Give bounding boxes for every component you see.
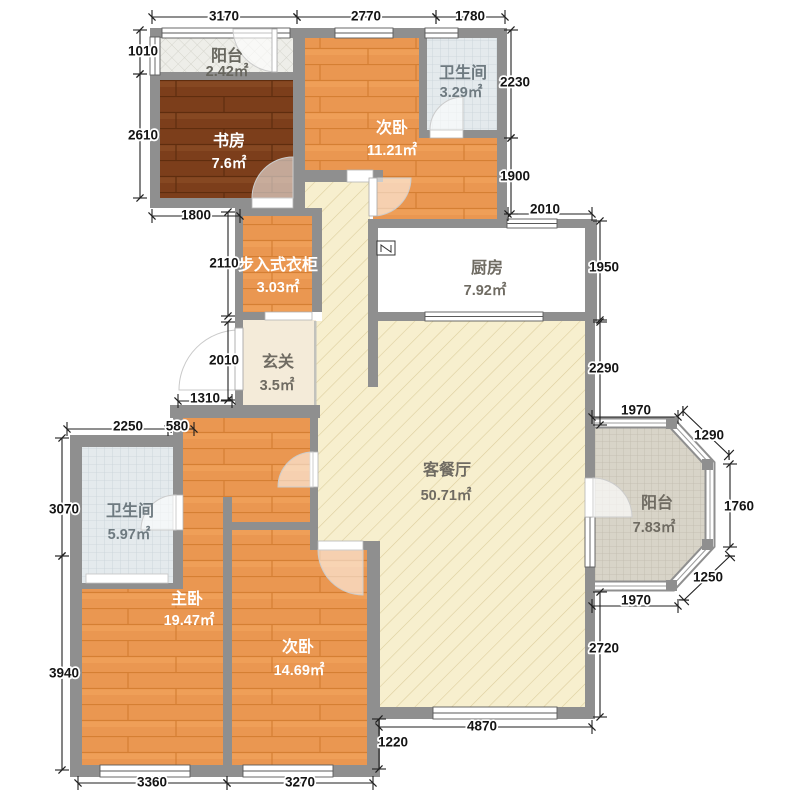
room-area-bathroom-bottom: 5.97㎡: [108, 525, 151, 543]
room-area-bathroom-top: 3.29㎡: [440, 83, 483, 101]
dimension-label: 3360: [137, 775, 167, 790]
window: [335, 28, 393, 38]
wall: [70, 435, 82, 777]
dimension: 1970: [588, 593, 681, 613]
room-label-master-bedroom: 主卧: [171, 589, 203, 608]
room-area-living-dining: 50.71㎡: [421, 486, 472, 504]
dimension-label: 4870: [467, 719, 497, 734]
dimension-label: 1310: [190, 391, 220, 406]
dimension: 2770: [293, 9, 439, 24]
room-label-kitchen: 厨房: [471, 258, 503, 277]
dimension-label: 1950: [589, 260, 619, 275]
dimension-label: 580: [166, 419, 189, 434]
foyer-hall-divider: [314, 321, 317, 405]
dimension-label: 2010: [530, 202, 560, 217]
dimension-label: 1760: [724, 499, 754, 514]
room-label-balcony-top: 阳台: [211, 46, 243, 65]
window: [433, 707, 557, 719]
dimension: 2110: [209, 208, 238, 319]
dimension-label: 1250: [693, 570, 723, 585]
hallway-floor-b: [322, 208, 370, 321]
window: [425, 312, 543, 321]
wall: [70, 435, 183, 447]
dimension: 2010: [504, 202, 595, 221]
window: [507, 219, 557, 228]
hallway-floor-a: [303, 182, 373, 208]
wall: [235, 312, 265, 320]
room-label-bathroom-top: 卫生间: [439, 63, 487, 82]
room-label-bedroom-top: 次卧: [376, 118, 408, 137]
passage-closet-foyer: [265, 312, 312, 320]
room-label-closet: 步入式衣柜: [238, 255, 318, 274]
room-area-master-bedroom: 19.47㎡: [164, 611, 215, 629]
dimension-label: 3070: [49, 502, 79, 517]
wall: [223, 497, 232, 765]
room-label-foyer: 玄关: [262, 352, 294, 371]
dimension-label: 1780: [455, 9, 485, 24]
room-area-closet: 3.03㎡: [257, 278, 300, 296]
wall: [235, 208, 322, 216]
dimension-label: 2250: [113, 419, 143, 434]
wall: [150, 198, 253, 208]
dimension-label: 2010: [209, 353, 239, 368]
wall: [170, 405, 320, 418]
room-area-balcony-top: 2.42㎡: [206, 62, 249, 80]
dimension-label: 1900: [500, 169, 530, 184]
room-area-bedroom-bottom: 14.69㎡: [274, 661, 325, 679]
wall: [419, 28, 427, 138]
room-label-living-dining: 客餐厅: [423, 460, 471, 479]
dimension-label: 1290: [694, 428, 724, 443]
wall: [82, 583, 183, 589]
dimension-label: 2110: [209, 256, 238, 271]
room-label-study: 书房: [213, 131, 245, 150]
window: [425, 28, 458, 38]
wall: [227, 522, 313, 530]
dimension-label: 1800: [181, 208, 211, 223]
room-area-balcony-right: 7.83㎡: [633, 518, 676, 536]
wall: [373, 219, 597, 228]
wall: [303, 170, 347, 182]
dimension: 2250: [63, 419, 171, 436]
dimension-label: 3270: [285, 775, 315, 790]
dimension-label: 1970: [621, 403, 651, 418]
dimension-label: 3940: [49, 666, 79, 681]
room-label-balcony-right: 阳台: [641, 493, 673, 512]
dimension-label: 3170: [209, 9, 239, 24]
dimension-label: 2610: [128, 128, 158, 143]
dimension-label: 1970: [621, 593, 651, 608]
dimension: 1760: [723, 460, 754, 550]
room-label-bathroom-bottom: 卫生间: [106, 501, 154, 520]
window: [585, 517, 595, 567]
room-area-study: 7.6㎡: [212, 154, 247, 172]
room-master-corridor-floor: [183, 522, 223, 589]
room-area-foyer: 3.5㎡: [260, 376, 295, 394]
dimension-label: 1010: [128, 44, 158, 59]
kitchen-appliance-icon: [377, 241, 395, 255]
bathtub-ledge: [86, 574, 168, 583]
floor-plan-page: 阳台2.42㎡书房7.6㎡次卧11.21㎡卫生间3.29㎡步入式衣柜3.03㎡玄…: [0, 0, 800, 800]
wall: [497, 28, 507, 219]
dimension: 1780: [432, 9, 508, 24]
dimension: 4870: [375, 719, 595, 734]
room-area-kitchen: 7.92㎡: [464, 281, 507, 299]
floor-plan: 阳台2.42㎡书房7.6㎡次卧11.21㎡卫生间3.29㎡步入式衣柜3.03㎡玄…: [0, 0, 800, 800]
dimension-label: 2230: [500, 75, 530, 90]
dimension-label: 2290: [589, 361, 619, 376]
dimension-label: 1220: [378, 735, 408, 750]
room-area-bedroom-top: 11.21㎡: [367, 141, 417, 159]
dimension-label: 2770: [351, 9, 381, 24]
dimension-label: 2720: [589, 641, 619, 656]
room-label-bedroom-bottom: 次卧: [282, 637, 314, 656]
dimension: 3170: [148, 9, 300, 24]
